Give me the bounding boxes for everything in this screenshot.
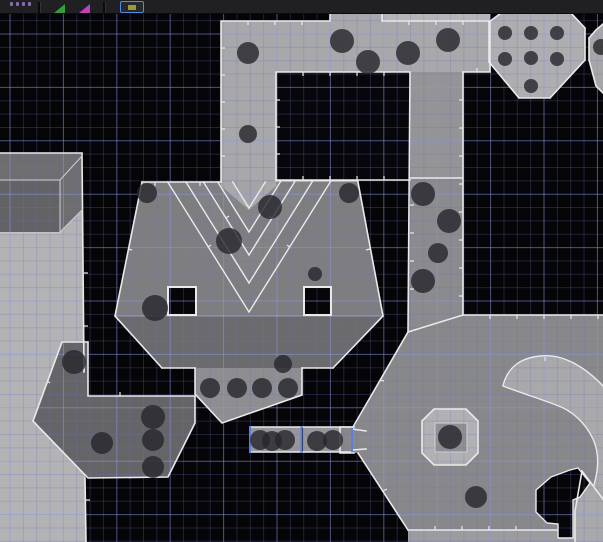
texture-dot <box>10 2 13 6</box>
thing-marker[interactable] <box>239 125 257 143</box>
thing-marker[interactable] <box>498 52 512 66</box>
thing-marker[interactable] <box>550 52 564 66</box>
thing-marker[interactable] <box>278 378 298 398</box>
thing-marker[interactable] <box>142 429 164 451</box>
thing-marker[interactable] <box>356 50 380 74</box>
thing-marker[interactable] <box>137 183 157 203</box>
thing-marker[interactable] <box>339 183 359 203</box>
magenta-marker-icon[interactable] <box>79 4 90 13</box>
thing-marker[interactable] <box>227 378 247 398</box>
toolbar-separator <box>38 2 41 13</box>
texture-swatch-icon[interactable] <box>10 3 32 13</box>
thing-marker[interactable] <box>411 269 435 293</box>
texture-dot <box>22 2 25 6</box>
thing-marker[interactable] <box>550 26 564 40</box>
thing-marker[interactable] <box>200 378 220 398</box>
thing-marker[interactable] <box>524 51 538 65</box>
tool-glyph-icon <box>128 5 136 10</box>
texture-dot <box>16 2 19 6</box>
thing-marker[interactable] <box>411 182 435 206</box>
green-marker-icon[interactable] <box>54 4 65 13</box>
left-box-face[interactable] <box>0 180 60 232</box>
thing-marker[interactable] <box>437 209 461 233</box>
thing-marker[interactable] <box>275 430 295 450</box>
active-tool-button[interactable] <box>120 1 144 13</box>
thing-marker[interactable] <box>436 28 460 52</box>
top-corridor-stub[interactable] <box>330 13 382 21</box>
top-corridor-upper[interactable] <box>382 13 490 21</box>
toolbar-separator <box>103 2 106 13</box>
toolbar <box>0 0 603 14</box>
thing-marker[interactable] <box>498 26 512 40</box>
thing-marker[interactable] <box>91 432 113 454</box>
thing-marker[interactable] <box>465 486 487 508</box>
thing-marker[interactable] <box>142 456 164 478</box>
thing-marker[interactable] <box>252 378 272 398</box>
thing-marker[interactable] <box>62 350 86 374</box>
thing-marker[interactable] <box>308 267 322 281</box>
thing-marker[interactable] <box>237 42 259 64</box>
dark-rect-sector[interactable] <box>276 72 410 180</box>
thing-marker[interactable] <box>428 243 448 263</box>
thing-marker[interactable] <box>274 355 292 373</box>
thing-marker[interactable] <box>524 79 538 93</box>
thing-marker[interactable] <box>396 41 420 65</box>
thing-marker[interactable] <box>141 405 165 429</box>
map-canvas[interactable] <box>0 0 603 542</box>
thing-marker[interactable] <box>216 228 242 254</box>
editor-window <box>0 0 603 542</box>
thing-marker[interactable] <box>323 430 343 450</box>
thing-marker[interactable] <box>330 29 354 53</box>
thing-marker[interactable] <box>438 425 462 449</box>
thing-marker[interactable] <box>258 195 282 219</box>
thing-marker[interactable] <box>142 295 168 321</box>
thing-marker[interactable] <box>524 26 538 40</box>
texture-dot <box>28 2 31 6</box>
